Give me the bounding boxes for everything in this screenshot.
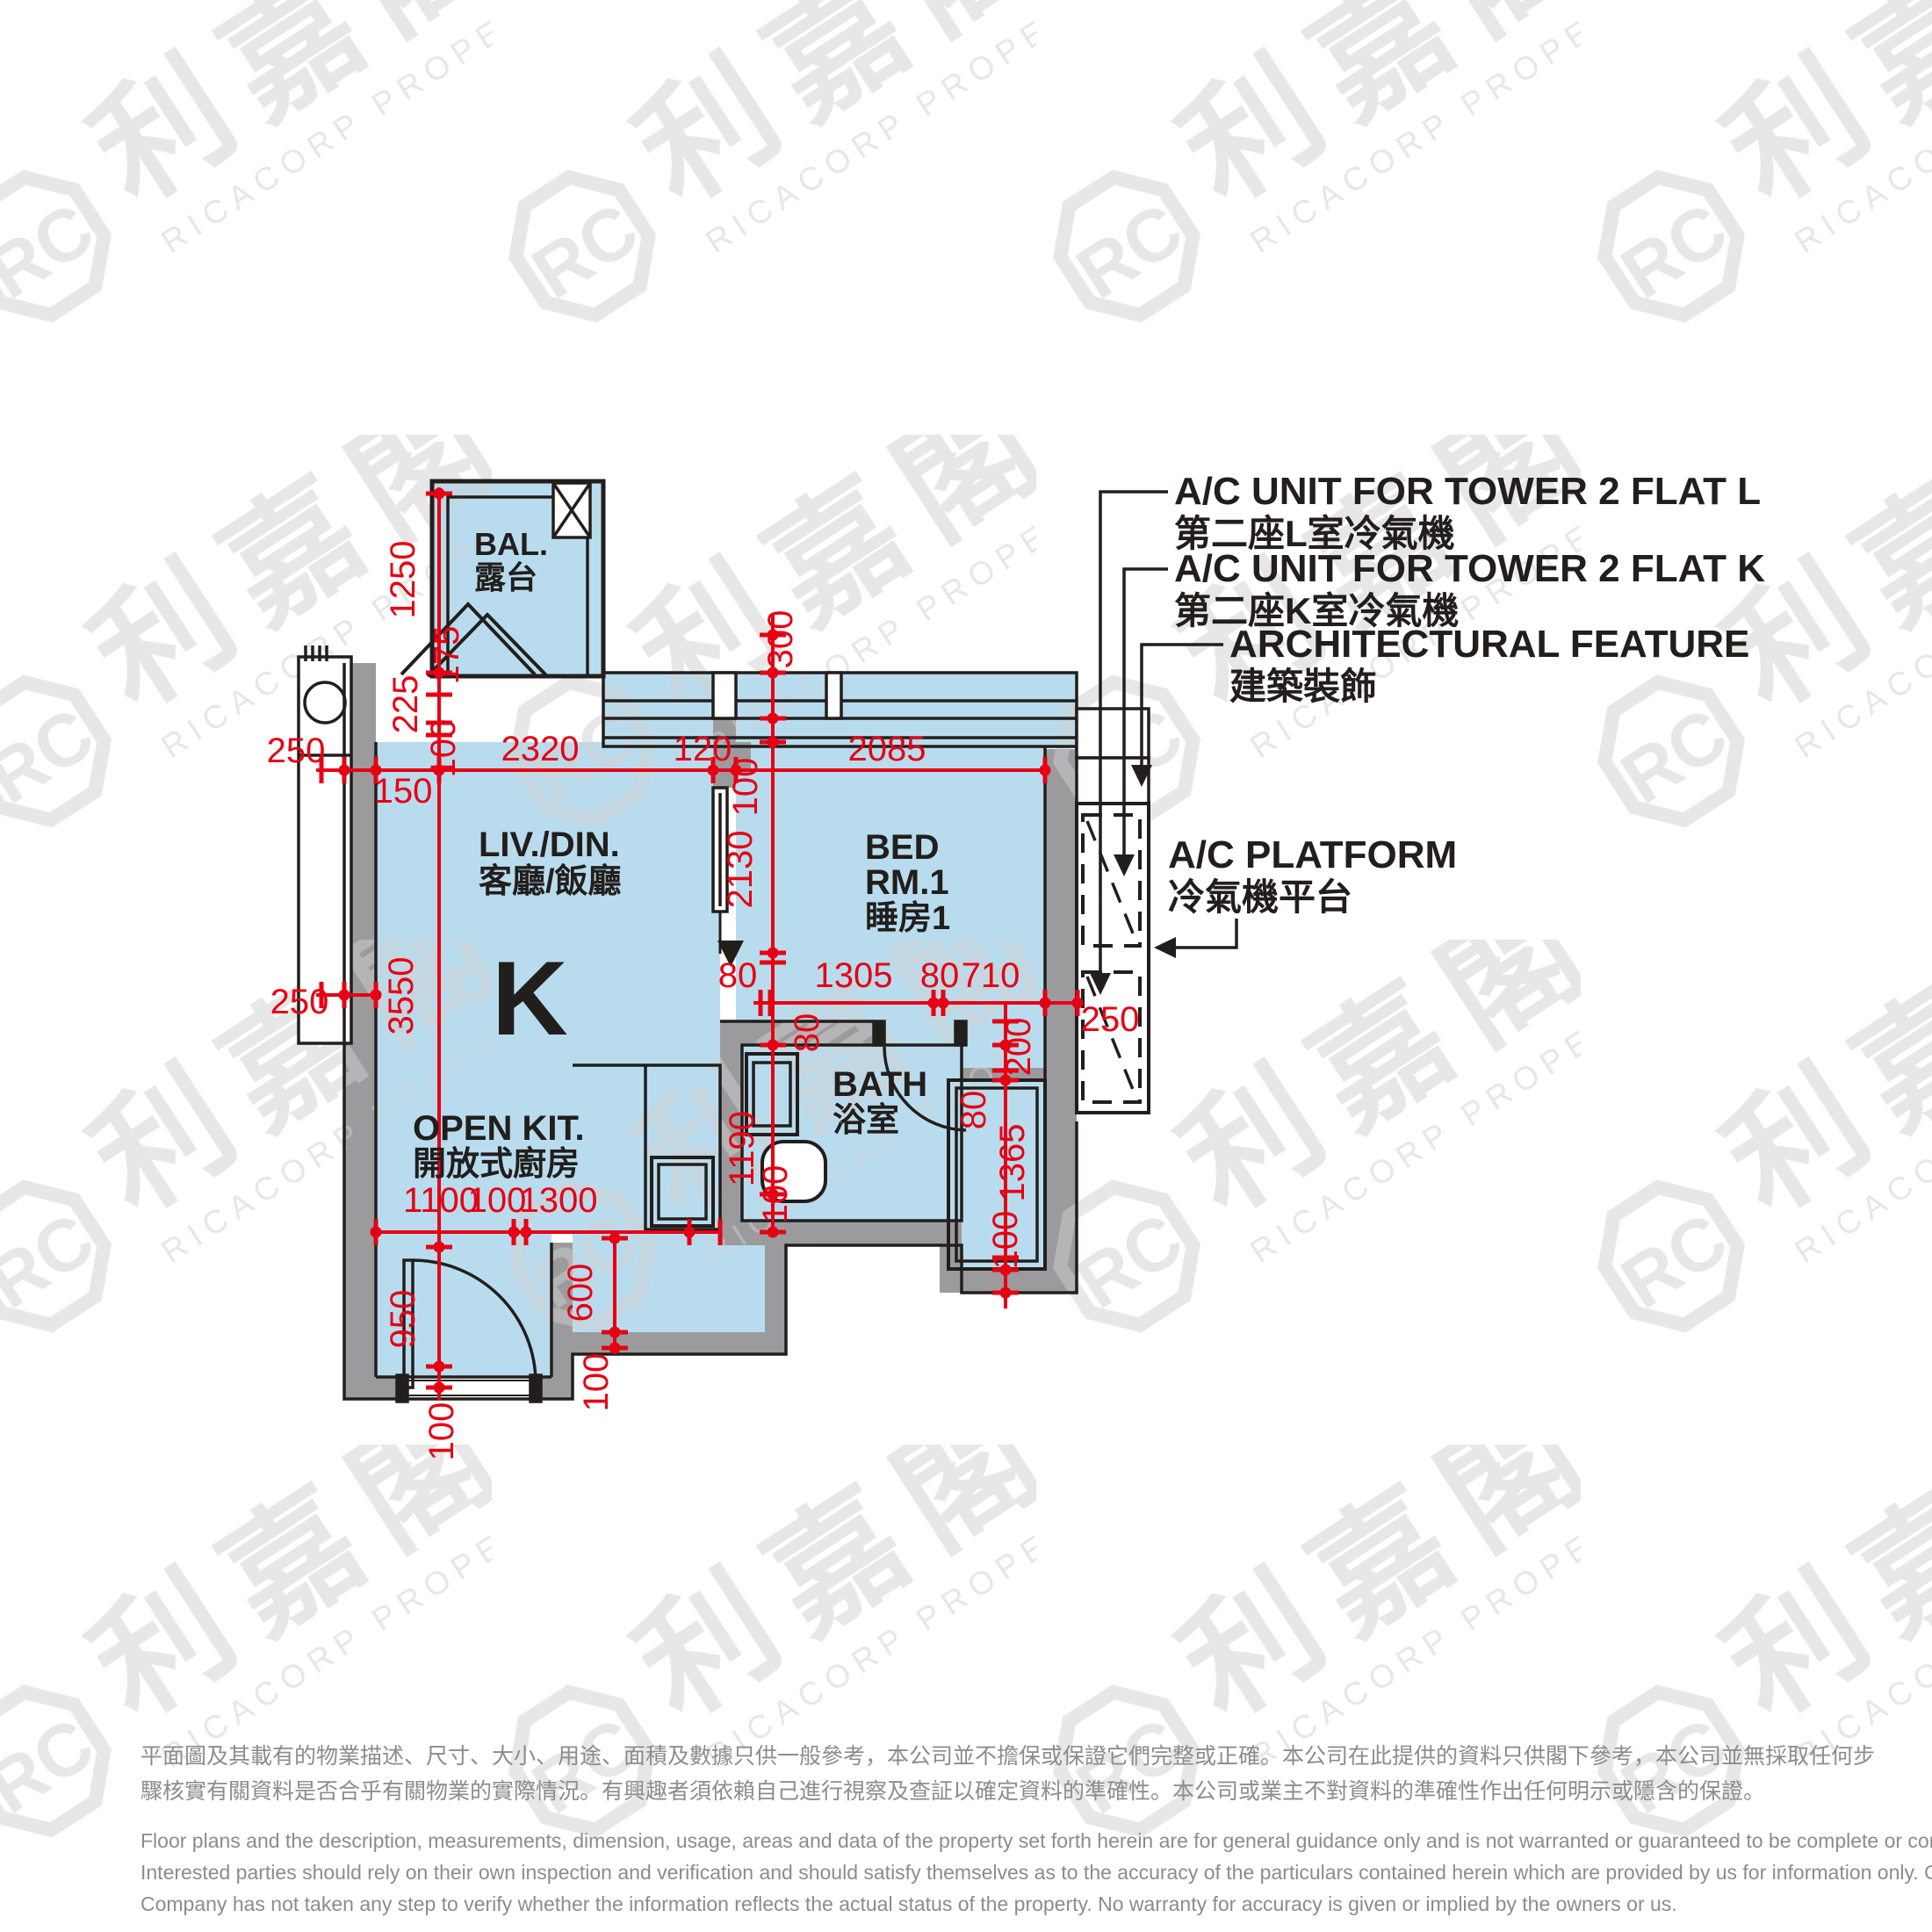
architectural-feature-strip — [1077, 709, 1149, 758]
dim-80-bath: 80 — [788, 1013, 826, 1053]
callout-platform-zh: 冷氣機平台 — [1168, 876, 1352, 918]
dim-710: 710 — [962, 956, 1020, 995]
callout-ac-flat-k-en: A/C UNIT FOR TOWER 2 FLAT K — [1174, 547, 1765, 590]
dim-250-platform: 250 — [1081, 1000, 1140, 1039]
dim-1305: 1305 — [815, 956, 893, 995]
disclaimer-en-line3: Company has not taken any step to verify… — [141, 1892, 1677, 1915]
dim-1250-balcony: 1250 — [384, 541, 422, 619]
dim-950: 950 — [384, 1290, 422, 1349]
dim-2130: 2130 — [721, 831, 760, 909]
disclaimer-zh-line1: 平面圖及其載有的物業描述、尺寸、大小、用途、面積及數據只供一般參考，本公司並不擔… — [141, 1744, 1875, 1769]
balcony-label-en: BAL. — [474, 526, 548, 562]
window-mullion-1 — [713, 673, 736, 718]
disclaimer-en-line2: Interested parties should rely on their … — [141, 1861, 1932, 1884]
dim-600: 600 — [561, 1264, 600, 1323]
dim-100-entry: 100 — [468, 1181, 527, 1220]
dim-100-bedroom-top: 100 — [726, 758, 765, 817]
dim-80-closet: 80 — [955, 1091, 993, 1130]
dim-250-west-top: 250 — [267, 732, 326, 770]
dim-3550: 3550 — [382, 957, 421, 1035]
bedroom-label-en2: RM.1 — [865, 863, 949, 902]
dim-175: 175 — [428, 626, 466, 685]
balcony-label-zh: 露台 — [474, 559, 537, 595]
dim-250-west-bottom: 250 — [270, 983, 329, 1021]
dim-2320: 2320 — [501, 730, 580, 768]
flat-letter: K — [492, 940, 568, 1057]
dim-1300: 1300 — [520, 1181, 598, 1220]
callout-ac-flat-l-en: A/C UNIT FOR TOWER 2 FLAT L — [1174, 470, 1761, 513]
dim-200: 200 — [999, 1018, 1038, 1077]
callout-platform-en: A/C PLATFORM — [1168, 833, 1457, 876]
dim-80-left: 80 — [718, 956, 758, 995]
dim-120: 120 — [674, 730, 732, 768]
kitchen-label-zh: 開放式廚房 — [413, 1145, 580, 1183]
living-label-zh: 客廳/飯廳 — [479, 862, 622, 900]
bath-door-post-left — [874, 1021, 884, 1045]
architectural-feature-box — [1077, 758, 1149, 804]
dim-100-closet: 100 — [986, 1211, 1025, 1270]
kitchen-label-en: OPEN KIT. — [413, 1109, 585, 1148]
dim-100-bath: 100 — [756, 1165, 795, 1224]
callout-feature-en: ARCHITECTURAL FEATURE — [1229, 623, 1749, 666]
floor-plan-drawing: RC 利嘉閣 RICACORP PROPERTIES — [0, 0, 1932, 1932]
dim-300: 300 — [761, 610, 800, 669]
dim-225: 225 — [386, 675, 425, 734]
bath-label-zh: 浴室 — [833, 1101, 899, 1139]
bedroom-label-en: BED — [865, 828, 939, 867]
ac-platform-outline — [1077, 804, 1149, 1113]
disclaimer-en-line1: Floor plans and the description, measure… — [141, 1829, 1932, 1852]
dim-1365: 1365 — [993, 1124, 1032, 1202]
living-label-en: LIV./DIN. — [479, 825, 620, 864]
callout-feature-zh: 建築裝飾 — [1229, 666, 1377, 707]
dim-100-nw: 100 — [424, 719, 463, 778]
pipe-icon — [305, 682, 345, 723]
dim-100-entry-wall: 100 — [422, 1402, 461, 1461]
bedroom-label-zh: 睡房1 — [865, 900, 950, 937]
dim-2085: 2085 — [848, 730, 926, 768]
bath-label-en: BATH — [833, 1065, 927, 1104]
disclaimer-zh-line2: 驟核實有關資料是否合乎有關物業的實際情況。有興趣者須依賴自己進行視察及查証以確定… — [141, 1779, 1765, 1804]
dim-80-mid: 80 — [920, 956, 960, 995]
floor-plan-page: RC 利嘉閣 RICACORP PROPERTIES — [0, 0, 1932, 1932]
window-mullion-2 — [826, 673, 841, 718]
dim-100-kitchen: 100 — [577, 1353, 616, 1412]
bath-door-post-right — [955, 1021, 966, 1045]
